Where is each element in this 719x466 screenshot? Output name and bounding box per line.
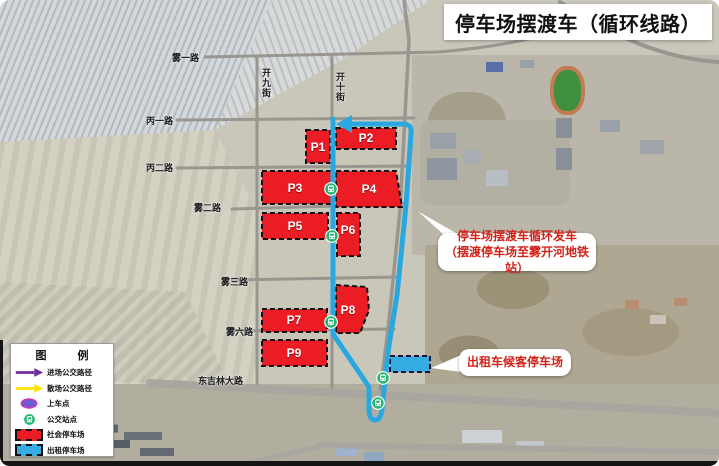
legend: 图 例 进场公交路径 散场公交路径 上车点 公交站点: [10, 343, 114, 457]
map-building: [625, 300, 639, 309]
map-campus-area: [412, 55, 719, 255]
bus-stop-icon: [11, 413, 47, 426]
taxi-callout: 出租车候客停车场: [459, 349, 571, 376]
taxi-callout-text: 出租车候客停车场: [467, 354, 563, 370]
road-dong-ji-lin: [150, 383, 719, 413]
map-title-box: 停车场摆渡车（循环线路）: [444, 4, 712, 40]
legend-row-bus-stop: 公交站点: [11, 412, 113, 428]
map-building: [674, 298, 687, 306]
road-label-kai-shi: 开十街: [334, 72, 347, 102]
loop-callout-line1: 停车场摆渡车循环发车: [457, 228, 577, 244]
shuttle-route-line: [333, 119, 411, 420]
bus-stop-icon: [371, 396, 385, 410]
legend-row-social-lot: 社会停车场: [11, 427, 113, 443]
legend-label: 进场公交路径: [47, 367, 92, 378]
map-building: [650, 315, 666, 324]
loop-callout-line2: （摆渡停车场至雾开河地铁站）: [438, 244, 596, 276]
taxi-lot-swatch: [11, 444, 47, 456]
legend-row-taxi-lot: 出租停车场: [11, 443, 113, 459]
map-building: [462, 430, 502, 443]
legend-label: 上车点: [47, 398, 70, 409]
map-building: [600, 120, 620, 132]
map-building: [427, 158, 457, 180]
road-label-kai-jiu: 开九街: [260, 68, 273, 98]
lot-label-p3: P3: [288, 181, 303, 195]
loop-callout: 停车场摆渡车循环发车 （摆渡停车场至雾开河地铁站）: [438, 233, 596, 271]
road-wu-er: [232, 204, 406, 209]
lot-label-p9: P9: [287, 346, 302, 360]
map-building: [124, 432, 162, 440]
map-frame-left: [0, 340, 3, 466]
road-east-slant: [380, 0, 409, 392]
map-building: [486, 170, 508, 186]
road-label-dong-ji-lin: 东吉林大路: [198, 374, 243, 387]
yellow-arrow-icon: [11, 383, 47, 394]
lot-label-p6: P6: [341, 223, 356, 237]
map-title: 停车场摆渡车（循环线路）: [455, 8, 701, 37]
road-label-bing-yi: 丙一路: [146, 114, 173, 127]
lot-label-p5: P5: [288, 219, 303, 233]
road-label-wu-yi: 雾一路: [172, 51, 199, 64]
social-lot-swatch: [11, 429, 47, 441]
road-wu-liu: [232, 329, 394, 331]
map-building: [556, 118, 572, 138]
legend-label: 散场公交路径: [47, 383, 92, 394]
map-building: [486, 62, 503, 72]
route-direction-arrow: [336, 115, 352, 133]
lot-label-p1: P1: [311, 140, 326, 154]
map-campus-ground: [420, 120, 570, 205]
legend-label: 公交站点: [47, 414, 77, 425]
boarding-point-icon: [11, 398, 47, 409]
road-bing-yi: [177, 118, 414, 120]
legend-label: 出租停车场: [47, 445, 85, 456]
map-building: [336, 444, 358, 456]
map-building: [463, 150, 481, 164]
legend-label: 社会停车场: [47, 429, 85, 440]
map-building: [520, 60, 534, 68]
bus-stop-icon: [325, 229, 339, 243]
lot-taxi: [390, 356, 430, 372]
legend-row-entry-route: 进场公交路径: [11, 365, 113, 381]
bus-stop-icon: [376, 371, 390, 385]
lot-label-p7: P7: [287, 313, 302, 327]
map-building: [556, 148, 572, 170]
map-tree-patch: [428, 92, 506, 158]
map-building: [140, 448, 174, 456]
map-building: [516, 441, 544, 450]
shuttle-route-map: 雾一路 开九街 开十街 丙一路 丙二路 雾二路 雾三路 雾六路 东吉林大路 P1…: [0, 0, 719, 466]
map-stadium: [550, 66, 585, 115]
legend-row-boarding-point: 上车点: [11, 396, 113, 412]
lot-label-p2: P2: [359, 131, 374, 145]
map-building: [430, 133, 456, 149]
map-frame-bottom: [0, 461, 719, 466]
road-label-wu-er: 雾二路: [194, 201, 221, 214]
road-wu-san: [232, 277, 399, 280]
road-label-bing-er: 丙二路: [146, 161, 173, 174]
road-label-wu-liu: 雾六路: [226, 325, 253, 338]
map-building: [640, 140, 664, 154]
map-building: [364, 452, 384, 461]
lot-label-p8: P8: [341, 303, 356, 317]
road-label-wu-san: 雾三路: [221, 275, 248, 288]
road-bing-er: [177, 166, 410, 168]
legend-title: 图 例: [11, 347, 113, 363]
bus-stop-icon: [324, 182, 338, 196]
bus-stop-icon: [324, 315, 338, 329]
purple-arrow-icon: [11, 367, 47, 378]
road-bottom: [320, 445, 719, 452]
lot-label-p4: P4: [362, 182, 377, 196]
legend-row-exit-route: 散场公交路径: [11, 381, 113, 397]
